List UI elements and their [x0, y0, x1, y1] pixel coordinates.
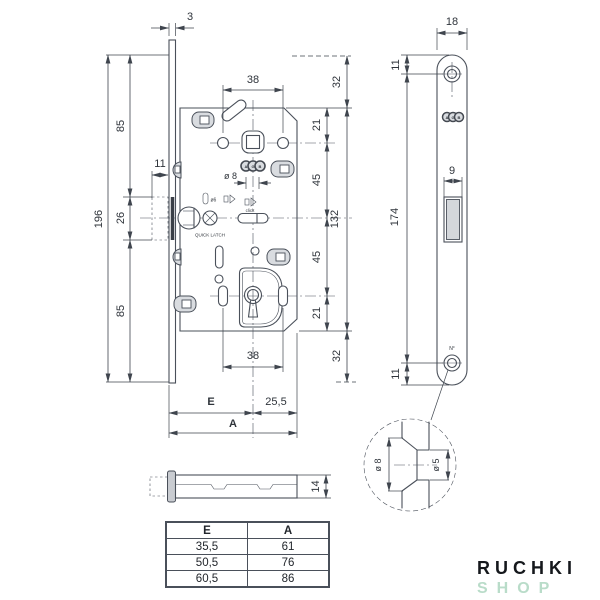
quick-latch-label: QUICK LATCH: [195, 233, 225, 238]
lock-side-view: 14: [150, 471, 331, 502]
tab-top-left-hole: [200, 116, 209, 124]
dim-label-dia5: ø 5: [431, 458, 441, 471]
dim-label-38-top: 38: [247, 74, 259, 86]
table-cell: 76: [248, 555, 330, 571]
latch-head-dashed: [150, 477, 168, 496]
dim-plate-thickness: 3: [151, 11, 194, 36]
dim-label-18: 18: [446, 16, 458, 28]
brand-letter: B: [458, 115, 461, 120]
table-cell: 86: [248, 571, 330, 588]
table-cell: 61: [248, 539, 330, 555]
latch-dia-label: ø6: [211, 198, 217, 204]
table-row: 60,5 86: [166, 571, 329, 588]
drawing-canvas: A G B ø 8 QUICK LATCH ø6: [0, 0, 600, 600]
dim-label-9: 9: [449, 165, 455, 177]
dim-label-45-bottom: 45: [311, 251, 323, 263]
table-cell: 60,5: [166, 571, 248, 588]
dim-backset-group: E 25,5 A: [169, 333, 297, 438]
dim-label-11-top: 11: [390, 59, 402, 70]
latch-front: [178, 207, 200, 229]
table-cell: 35,5: [166, 539, 248, 555]
case-side-outline: [176, 475, 298, 498]
logo-line-1: RUCHKI: [477, 559, 577, 577]
dim-label-3: 3: [187, 11, 193, 23]
latch-cutout-inner: [447, 200, 460, 240]
dim-label-E: E: [207, 396, 214, 408]
logo-line-2: SHOP: [477, 581, 577, 597]
dim-label-A: A: [229, 418, 237, 430]
dim-label-32-bottom: 32: [331, 350, 343, 362]
table-row: 35,5 61: [166, 539, 329, 555]
hook-upper-hole: [175, 166, 180, 173]
brand-letter: A: [245, 164, 248, 169]
handle-hole-right: [278, 138, 289, 149]
brand-letter: G: [451, 115, 454, 120]
table-row: 50,5 76: [166, 555, 329, 571]
dim-label-11: 11: [154, 158, 165, 170]
dim-label-26: 26: [115, 212, 127, 224]
brand-letter: B: [259, 164, 262, 169]
dim-label-38-bottom: 38: [247, 350, 259, 362]
dim-label-dia8: ø 8: [373, 458, 383, 471]
dim-label-132: 132: [329, 210, 341, 228]
dim-label-85-top: 85: [115, 120, 127, 132]
countersink-chamfer: [402, 438, 417, 450]
dim-label-hole8: ø 8: [224, 171, 237, 181]
brand-letter: A: [446, 115, 449, 120]
dim-label-21-bottom: 21: [311, 307, 323, 319]
faceplate-edge-on: [168, 471, 176, 502]
table-cell: 50,5: [166, 555, 248, 571]
brand-rivets-plate: A G B: [443, 113, 464, 122]
hook-lower-hole: [175, 253, 180, 260]
dim-label-45-top: 45: [311, 174, 323, 186]
lock-technical-drawing: A G B ø 8 QUICK LATCH ø6: [0, 0, 600, 600]
brand-rivets-front: A G B: [241, 161, 265, 171]
screw-hole-detail: ø 8 ø 5: [364, 419, 456, 511]
dim-pocket-11: 11: [152, 158, 168, 198]
dim-label-32-top: 32: [331, 76, 343, 88]
countersink-chamfer: [402, 480, 417, 491]
dim-label-21-top: 21: [311, 119, 323, 131]
dim-label-196: 196: [93, 210, 105, 228]
size-table: E A 35,5 61 50,5 76 60,5 86: [165, 521, 330, 588]
faceplate-front-view: 18 11 174 A G B 9 N°: [389, 16, 467, 420]
fix-slot-right: [279, 286, 288, 306]
tab-mid-right-hole: [280, 165, 289, 173]
number-label: N°: [449, 346, 455, 352]
dim-label-85-bottom: 85: [115, 305, 127, 317]
dim-label-174: 174: [389, 208, 401, 226]
dim-label-14: 14: [310, 480, 322, 492]
tab-low-right-hole: [276, 253, 285, 261]
click-label: click: [246, 208, 255, 213]
brand-letter: G: [251, 164, 254, 169]
latch-pocket-dashed: [152, 197, 168, 240]
table-header-A: A: [248, 522, 330, 539]
fix-slot-left: [219, 286, 228, 306]
tab-low-left-hole: [182, 300, 191, 308]
ruchki-shop-logo: RUCHKI SHOP: [477, 559, 577, 597]
lock-front-view: A G B ø 8 QUICK LATCH ø6: [93, 11, 356, 438]
slide-slot: [238, 214, 268, 224]
dim-label-255: 25,5: [265, 396, 286, 408]
table-header-row: E A: [166, 522, 329, 539]
table-header-E: E: [166, 522, 248, 539]
spindle-follower: [242, 131, 264, 153]
handle-hole-left: [218, 138, 229, 149]
dim-label-11-bottom: 11: [390, 368, 402, 379]
